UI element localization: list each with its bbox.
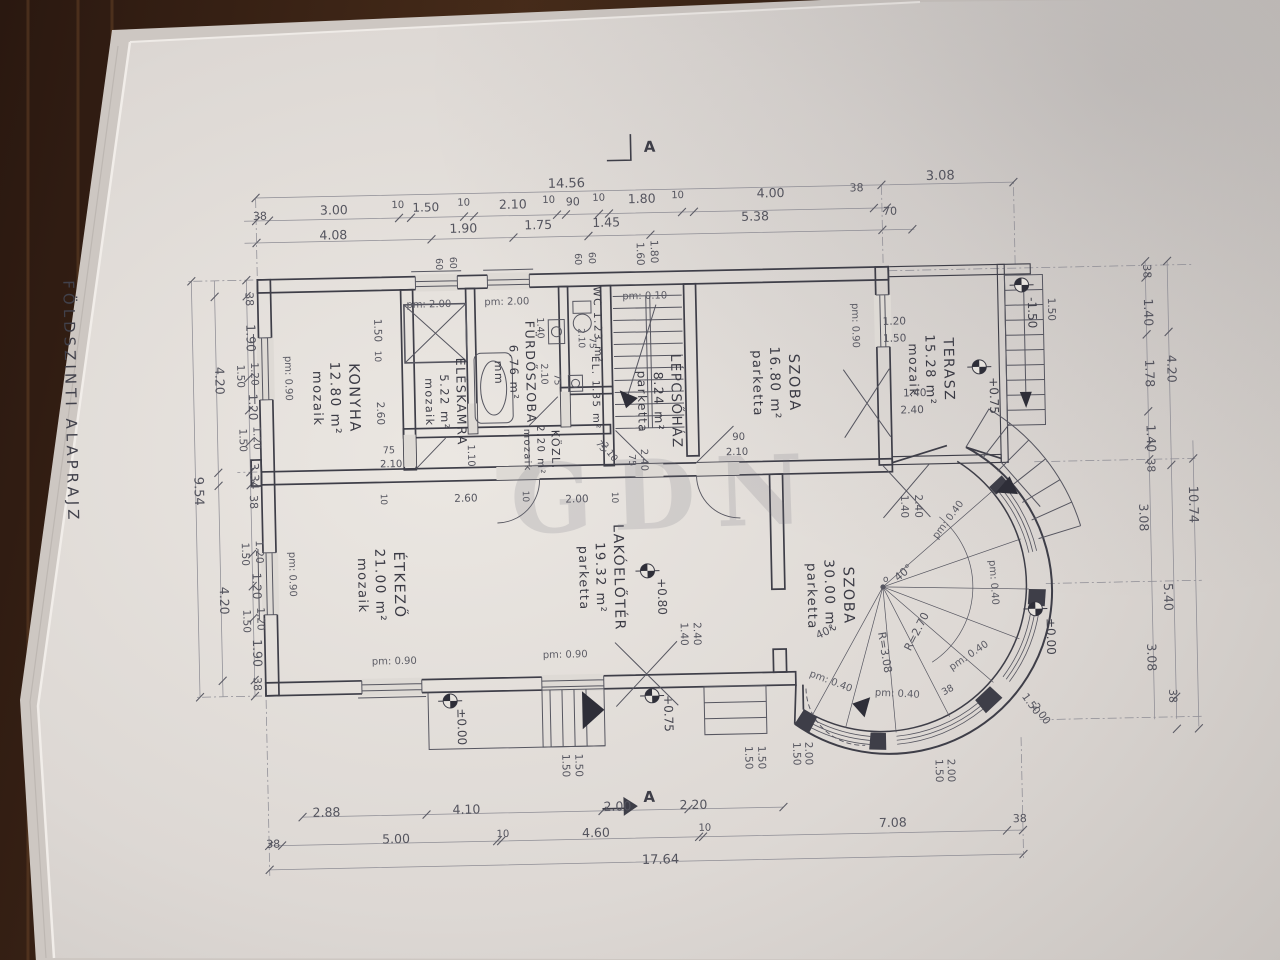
room-floor: parketta xyxy=(749,350,765,417)
photo-of-floorplan: A A FÖLDSZINTI ALAPRAJZ KONYHA12.80 m²mo… xyxy=(0,0,1280,960)
annotation-label: 1.20 xyxy=(883,315,907,327)
annotation-label: 75 xyxy=(587,337,597,349)
annotation-label: 2.40 xyxy=(912,494,924,518)
dimension-label: 3.08 xyxy=(1144,643,1160,671)
dimension-label: 4.20 xyxy=(217,587,233,615)
annotation-label: 1.80 xyxy=(648,240,660,264)
watermark-text: GDN xyxy=(508,433,825,557)
room-area: 12.80 m² xyxy=(326,361,344,435)
annotation-label: o xyxy=(883,575,889,585)
dimension-label: 1.90 xyxy=(449,220,477,236)
annotation-label: pm: 2.00 xyxy=(484,296,529,308)
dimension-label: 10 xyxy=(592,193,605,204)
room-name: SZOBA xyxy=(839,567,856,625)
dimension-label: 4.08 xyxy=(319,227,347,243)
dimension-label: 4.20 xyxy=(1164,355,1180,383)
dimension-label: 38 xyxy=(247,495,260,509)
annotation-label: 1.60 xyxy=(634,242,646,266)
annotation-label: 2.10 xyxy=(380,459,402,470)
dimension-label: 10.74 xyxy=(1185,486,1201,524)
room-floor: mozaik xyxy=(354,558,370,614)
room-name: ÉLÉSKAMRA xyxy=(453,357,470,446)
room-name: TERASZ xyxy=(940,337,957,402)
room-name: KONYHA xyxy=(345,363,362,433)
annotation-label: ±0.00 xyxy=(1044,618,1059,655)
dimension-label: 38 xyxy=(1144,458,1157,472)
dimension-label: 5.00 xyxy=(382,831,410,847)
dimension-label: 4.00 xyxy=(757,185,785,201)
annotation-label: pm: 0.90 xyxy=(282,356,294,401)
dimension-label: 1.45 xyxy=(592,214,620,230)
dimension-label: 2.88 xyxy=(312,804,340,820)
room-floor: parketta xyxy=(635,371,650,434)
room-floor: mm xyxy=(492,361,506,386)
dimension-label: 2.20 xyxy=(679,797,707,813)
room-area: 6.76 m² xyxy=(506,345,521,401)
annotation-label: -1.50 xyxy=(1025,297,1040,328)
annotation-label: pm: 0.90 xyxy=(849,303,861,348)
dimension-label: 38 xyxy=(1140,264,1153,278)
dimension-label: 1.20 xyxy=(254,607,266,631)
floorplan-svg: A A FÖLDSZINTI ALAPRAJZ KONYHA12.80 m²mo… xyxy=(0,0,1280,960)
dimension-label: 1.50 xyxy=(239,542,251,566)
annotation-label: 1.40 xyxy=(534,317,545,338)
dimension-label: 10 xyxy=(496,829,509,840)
annotation-label: 60 xyxy=(447,257,458,269)
annotation-label: 10 xyxy=(372,351,382,363)
dimension-label: 1.50 xyxy=(236,428,248,452)
dimension-label: 10 xyxy=(391,200,404,211)
dimension-label: 9.54 xyxy=(190,477,206,506)
room-floor: parketta xyxy=(576,546,592,611)
annotation-label: pm: 2.00 xyxy=(406,299,451,311)
annotation-label: 1.40 xyxy=(898,495,910,519)
dimension-label: 1.20 xyxy=(253,540,265,564)
annotation-label: 10 xyxy=(378,494,388,506)
annotation-label: 1.50 xyxy=(932,759,944,783)
dimension-label: 4.60 xyxy=(582,825,610,841)
dimension-label: 7.08 xyxy=(879,814,907,830)
section-letter-bottom: A xyxy=(643,788,655,806)
dimension-label: 1.40 xyxy=(1144,424,1160,452)
dimension-label: 1.90 xyxy=(243,324,259,352)
room-name: WC 1.23 m² xyxy=(591,286,605,363)
dimension-label: 1.20 xyxy=(250,426,262,450)
dimension-label: 1.75 xyxy=(524,217,552,233)
room-name: ÉTKEZŐ xyxy=(390,551,409,618)
dimension-label: 3.08 xyxy=(926,168,955,184)
dimension-label: 38 xyxy=(1013,812,1027,825)
room-floor: mozaik xyxy=(309,371,325,427)
dimension-label: 3.00 xyxy=(320,202,348,218)
annotation-label: 1.40 xyxy=(903,387,927,399)
dimension-label: 1.50 xyxy=(234,365,246,389)
annotation-label: 1.10 xyxy=(465,444,476,466)
room-floor: parketta xyxy=(803,563,819,630)
annotation-label: 75 xyxy=(383,445,395,456)
dimension-label: 1.78 xyxy=(1142,359,1158,387)
annotation-label: ±0.00 xyxy=(454,708,469,745)
dimension-label: 10 xyxy=(698,823,711,834)
annotation-label: pm: 0.90 xyxy=(286,552,298,597)
annotation-label: 2.00 xyxy=(944,759,956,783)
dimension-label: 10 xyxy=(457,197,470,208)
dimension-label: 1.40 xyxy=(1141,298,1157,326)
annotation-label: 1.50 xyxy=(1045,298,1057,322)
dimension-label: 1.80 xyxy=(628,191,656,207)
dimension-label: 1.20 xyxy=(249,573,264,600)
annotation-label: 2.00 xyxy=(802,742,814,766)
annotation-label: 60 xyxy=(572,253,583,265)
annotation-label: pm: 0.90 xyxy=(543,649,588,661)
dimension-label: 38 xyxy=(1166,689,1179,703)
dimension-label: 1.50 xyxy=(240,609,252,633)
annotation-label: 2.10 xyxy=(575,328,585,349)
annotation-label: pm: 0.10 xyxy=(622,290,667,302)
dimension-label: 5.40 xyxy=(1161,583,1177,611)
annotation-label: 1.50 xyxy=(371,319,383,343)
dimension-label: 1.90 xyxy=(250,639,266,667)
annotation-label: 1.50 xyxy=(883,332,907,344)
dimension-label: 14.56 xyxy=(548,176,586,192)
annotation-label: +0.80 xyxy=(655,578,670,615)
annotation-label: 75 xyxy=(551,374,561,386)
annotation-label: pm: 0.90 xyxy=(372,656,417,668)
dimension-label: 38 xyxy=(251,677,264,691)
annotation-label: 1.40 xyxy=(678,622,690,646)
dimension-label: 70 xyxy=(883,205,897,218)
annotation-label: 60 xyxy=(433,258,444,270)
dimension-label: 1.20 xyxy=(246,394,261,421)
dimension-label: 38 xyxy=(266,838,280,851)
annotation-label: 2.40 xyxy=(900,404,924,416)
room-area: 21.00 m² xyxy=(371,549,389,623)
dimension-label: 4.20 xyxy=(212,367,228,395)
annotation-label: 1.50 xyxy=(755,746,767,770)
dimension-label: 2.00 xyxy=(603,798,631,814)
annotation-label: 1.50 xyxy=(742,746,754,770)
dimension-label: 90 xyxy=(566,195,580,208)
annotation-label: 2.60 xyxy=(454,492,478,504)
dimension-label: 4.10 xyxy=(452,801,480,817)
annotation-label: +0.75 xyxy=(661,695,676,732)
annotation-label: +0.75 xyxy=(987,377,1002,414)
annotation-label: 2.10 xyxy=(538,363,549,384)
dimension-label: 38 xyxy=(849,181,863,194)
annotation-label: 60 xyxy=(586,252,597,264)
room-area: 16.80 m² xyxy=(766,346,784,420)
annotation-label: 2.40 xyxy=(691,622,703,646)
dimension-label: 38 xyxy=(253,210,267,223)
dimension-label: 38 xyxy=(243,292,256,306)
annotation-label: pm: 0.40 xyxy=(875,688,920,701)
room-name: EL. 1.35 m² xyxy=(589,356,602,430)
dimension-label: 10 xyxy=(542,195,555,206)
dimension-label: 3.08 xyxy=(1136,503,1152,531)
annotation-label: 1.50 xyxy=(572,754,584,778)
dimension-label: 2.10 xyxy=(499,196,527,212)
room-area: 8.24 m² xyxy=(651,372,667,432)
dimension-label: 1.50 xyxy=(412,200,439,215)
room-name: LÉPCSŐHÁZ xyxy=(667,354,687,449)
annotation-label: 1.50 xyxy=(790,742,802,766)
room-floor: mozaik xyxy=(422,378,436,427)
dimension-label: 3.34 xyxy=(247,463,262,490)
room-name: SZOBA xyxy=(785,354,802,412)
annotation-label: 1.50 xyxy=(559,754,571,778)
section-letter-top: A xyxy=(644,138,656,156)
dimension-label: 10 xyxy=(671,190,684,201)
dimension-label: 1.20 xyxy=(248,362,260,386)
room-area: 5.22 m² xyxy=(437,374,452,430)
annotation-label: 2.60 xyxy=(374,402,386,426)
dimension-label: 17.64 xyxy=(642,852,680,868)
dimension-label: 5.38 xyxy=(741,208,769,224)
